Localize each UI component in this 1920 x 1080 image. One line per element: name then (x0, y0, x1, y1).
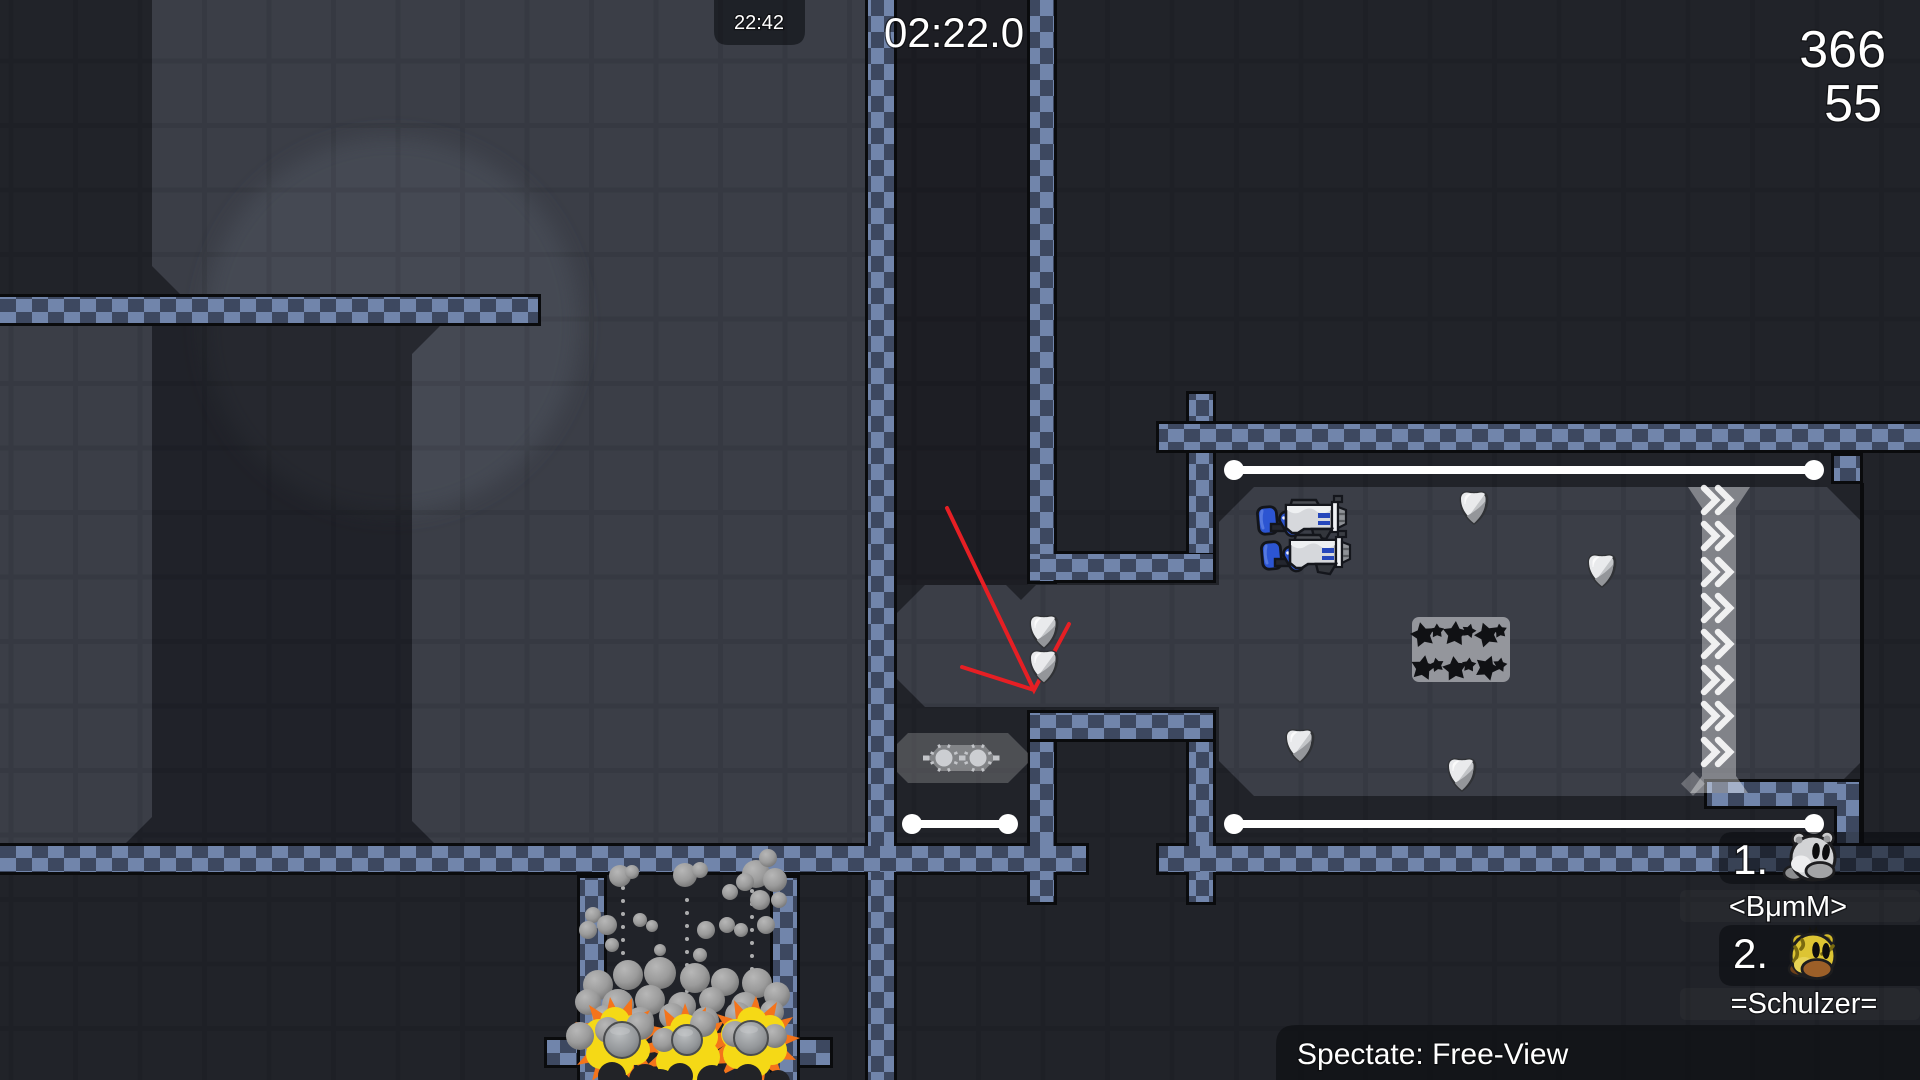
svg-text:22:42: 22:42 (734, 12, 784, 34)
svg-text:366: 366 (1799, 21, 1886, 79)
svg-text:55: 55 (1824, 75, 1882, 133)
svg-text:<BμmM>: <BμmM> (1729, 891, 1847, 923)
svg-text:Spectate: Free-View: Spectate: Free-View (1297, 1038, 1569, 1071)
svg-text:1.: 1. (1733, 836, 1768, 883)
svg-text:=Schulzer=: =Schulzer= (1731, 988, 1878, 1020)
svg-text:02:22.0: 02:22.0 (884, 9, 1024, 56)
svg-text:2.: 2. (1733, 930, 1768, 977)
